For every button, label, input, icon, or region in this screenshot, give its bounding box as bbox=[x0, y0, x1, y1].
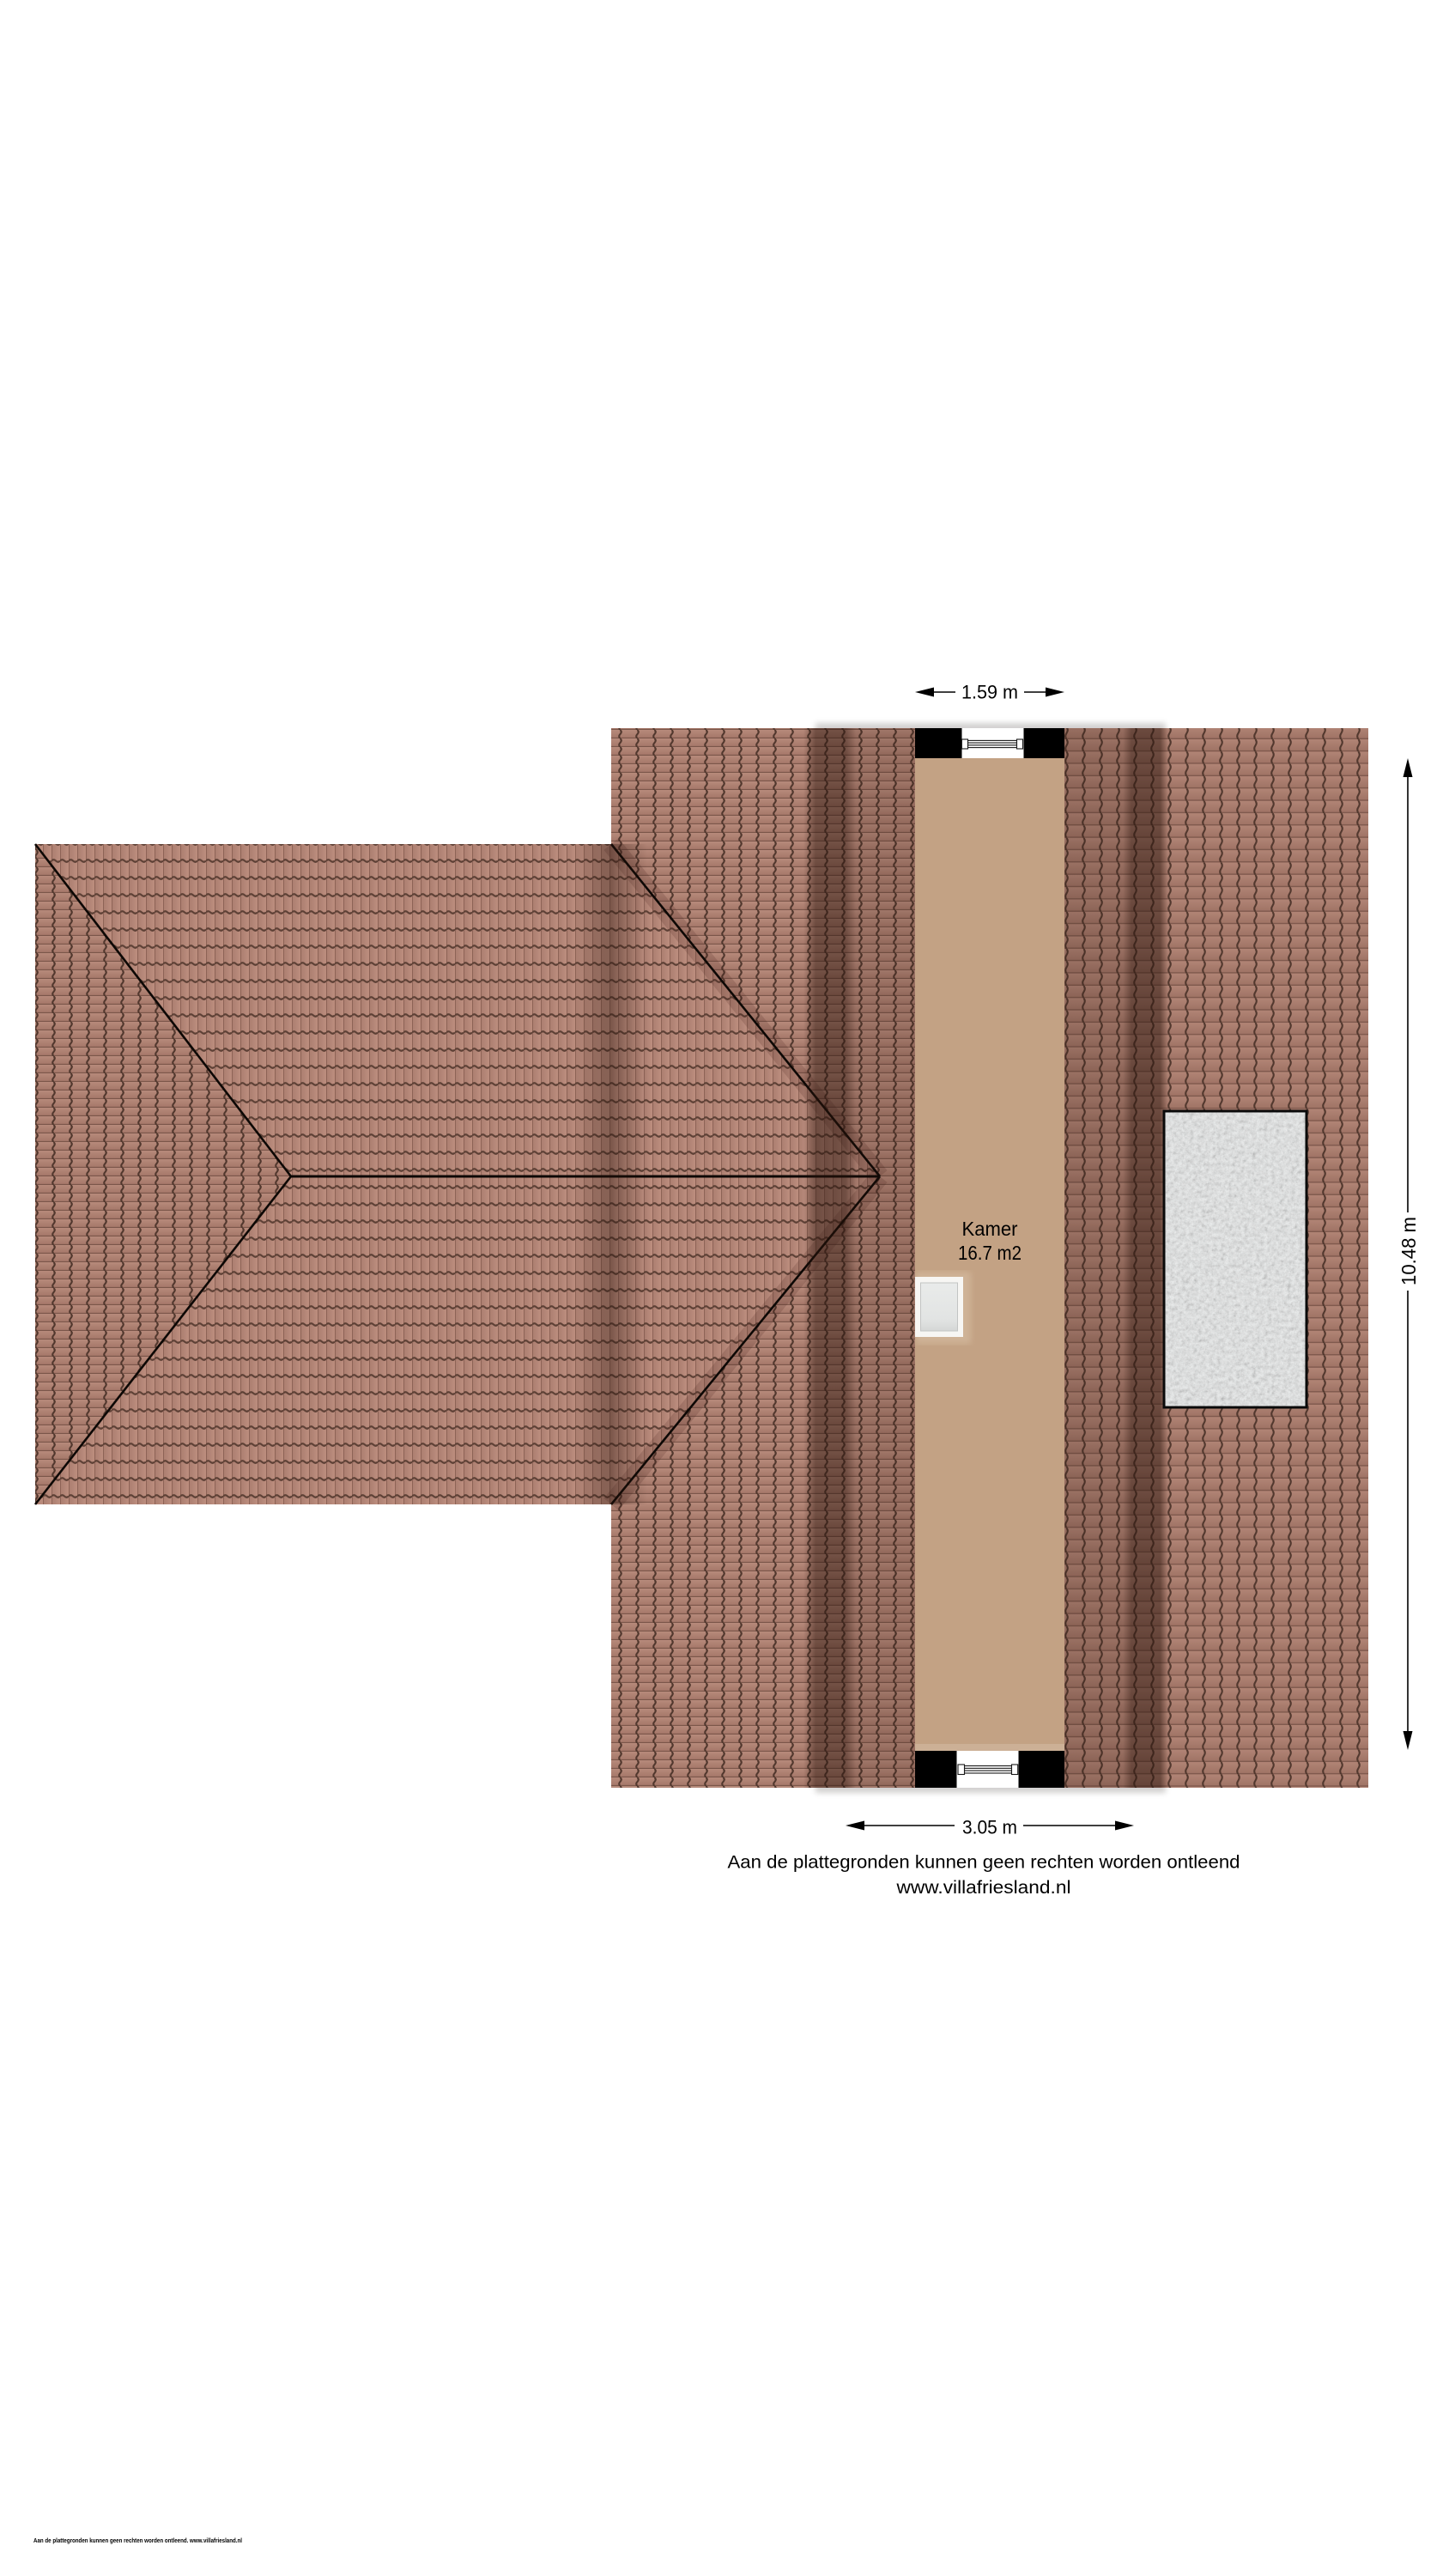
svg-text:Kamer: Kamer bbox=[962, 1218, 1018, 1240]
svg-text:16.7 m2: 16.7 m2 bbox=[958, 1242, 1022, 1264]
svg-text:Aan de plattegronden kunnen ge: Aan de plattegronden kunnen geen rechten… bbox=[33, 2538, 242, 2544]
svg-text:Aan de plattegronden kunnen ge: Aan de plattegronden kunnen geen rechten… bbox=[728, 1852, 1240, 1873]
svg-text:1.59 m: 1.59 m bbox=[961, 682, 1018, 703]
svg-text:www.villafriesland.nl: www.villafriesland.nl bbox=[895, 1877, 1070, 1898]
svg-text:3.05 m: 3.05 m bbox=[962, 1817, 1017, 1838]
svg-text:10.48 m: 10.48 m bbox=[1397, 1217, 1420, 1285]
